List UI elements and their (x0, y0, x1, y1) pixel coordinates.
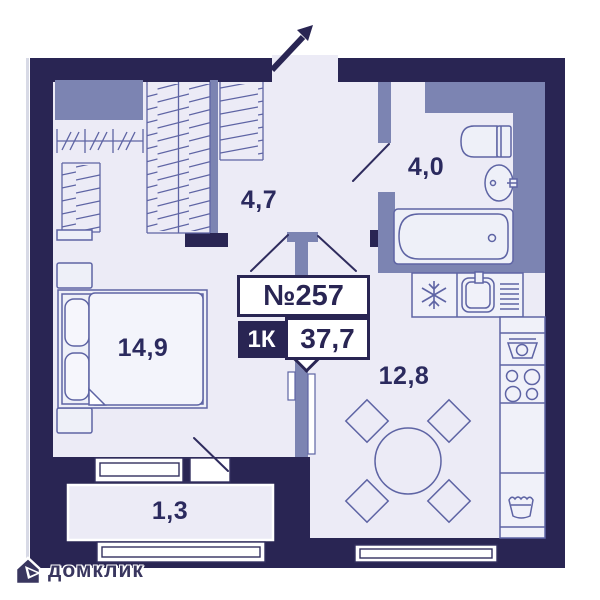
bathroom-area-label: 4,0 (396, 153, 456, 182)
kitchen-window-glass (360, 549, 492, 558)
pillow (65, 299, 89, 346)
balcony-area-label: 1,3 (130, 497, 210, 526)
hall-area-label: 4,7 (229, 186, 289, 215)
door-leaf (288, 372, 295, 400)
nightstand-top (57, 263, 92, 288)
watermark: домклик (12, 554, 144, 588)
bath-top-duct (425, 82, 545, 113)
shelf-rack-left (62, 163, 100, 232)
closet-wall (210, 80, 218, 233)
bathtub (394, 209, 513, 264)
door-leaf (308, 374, 315, 454)
bedroom-area-label: 14,9 (103, 334, 183, 363)
house-logo-icon (12, 554, 44, 588)
nightstand-bottom (57, 408, 92, 433)
pillow (65, 353, 89, 400)
bath-wall-lower (378, 192, 395, 270)
bath-right-duct (513, 113, 545, 270)
dining-table (375, 428, 441, 494)
bath-wall-notch (370, 230, 378, 247)
closet-block (55, 80, 143, 120)
toilet (461, 126, 511, 157)
bedroom-window-glass (100, 463, 179, 476)
wardrobe-cap (57, 230, 92, 240)
wardrobe-rack-right (220, 82, 263, 160)
floor-plan-page: 4,7 4,0 14,9 12,8 1,3 №257 1К 37,7 домкл… (0, 0, 600, 600)
watermark-text: домклик (48, 559, 144, 583)
kitchen-area-label: 12,8 (364, 362, 444, 391)
wardrobe-rack-center (147, 82, 210, 233)
kitchen-sink-icon (462, 272, 494, 312)
bath-wall-upper (378, 82, 391, 143)
unit-rooms-badge: 1К (238, 321, 285, 358)
unit-number: №257 (237, 275, 370, 317)
t-wall-bar (287, 232, 318, 242)
plan-edge-shadow (26, 58, 29, 568)
hall-wall-stub (185, 233, 228, 247)
unit-area: 37,7 (285, 317, 370, 360)
window-divider (183, 458, 190, 482)
